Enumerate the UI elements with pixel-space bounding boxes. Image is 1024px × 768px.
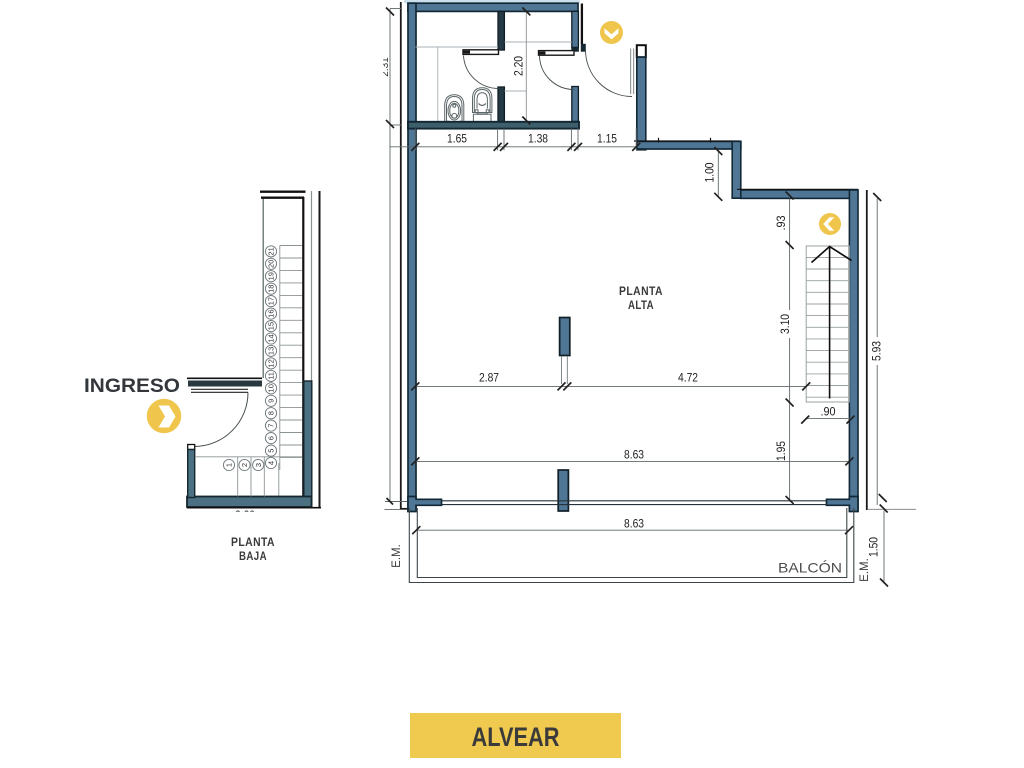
svg-text:16: 16 [267, 309, 276, 317]
svg-text:1.15: 1.15 [597, 132, 617, 146]
svg-text:BALCÓN: BALCÓN [778, 560, 842, 576]
svg-text:11: 11 [267, 372, 276, 380]
svg-text:18: 18 [267, 285, 276, 293]
svg-text:3: 3 [254, 463, 263, 467]
svg-text:9: 9 [267, 399, 276, 403]
svg-text:6: 6 [267, 436, 276, 440]
svg-text:1.38: 1.38 [528, 132, 548, 146]
svg-text:5.93: 5.93 [870, 341, 884, 361]
svg-text:.90: .90 [821, 405, 836, 419]
svg-text:21: 21 [267, 247, 276, 255]
svg-text:8.63: 8.63 [624, 517, 644, 531]
svg-text:2.20: 2.20 [235, 508, 255, 522]
svg-text:BAJA: BAJA [239, 551, 267, 563]
svg-text:13: 13 [267, 347, 276, 355]
svg-text:19: 19 [267, 272, 276, 280]
svg-text:ALVEAR: ALVEAR [472, 722, 560, 752]
svg-text:E.M.: E.M. [391, 544, 403, 568]
svg-text:8: 8 [267, 411, 276, 415]
svg-text:17: 17 [267, 297, 276, 305]
svg-text:2.87: 2.87 [479, 371, 499, 385]
svg-text:3.10: 3.10 [778, 314, 792, 334]
svg-text:2.20: 2.20 [512, 56, 526, 76]
svg-text:15: 15 [267, 322, 276, 330]
svg-text:PLANTA: PLANTA [231, 537, 275, 549]
svg-text:ALTA: ALTA [628, 300, 654, 312]
svg-text:1.00: 1.00 [703, 162, 717, 182]
svg-text:PLANTA: PLANTA [619, 286, 663, 298]
svg-text:2: 2 [240, 463, 249, 467]
svg-text:1.50: 1.50 [867, 537, 881, 557]
svg-text:INGRESO: INGRESO [84, 375, 180, 397]
svg-text:5: 5 [267, 449, 276, 453]
svg-text:1.95: 1.95 [774, 441, 788, 461]
svg-text:1: 1 [225, 463, 234, 467]
svg-text:14: 14 [267, 334, 276, 342]
svg-text:12: 12 [267, 359, 276, 367]
svg-text:.93: .93 [774, 215, 788, 230]
svg-text:20: 20 [267, 260, 276, 268]
svg-text:4.72: 4.72 [678, 371, 698, 385]
svg-text:E.M.: E.M. [859, 558, 871, 582]
svg-text:8.63: 8.63 [624, 448, 644, 462]
svg-text:7: 7 [267, 424, 276, 428]
svg-text:1.65: 1.65 [447, 132, 467, 146]
svg-text:4: 4 [267, 461, 276, 465]
svg-text:10: 10 [267, 384, 276, 392]
